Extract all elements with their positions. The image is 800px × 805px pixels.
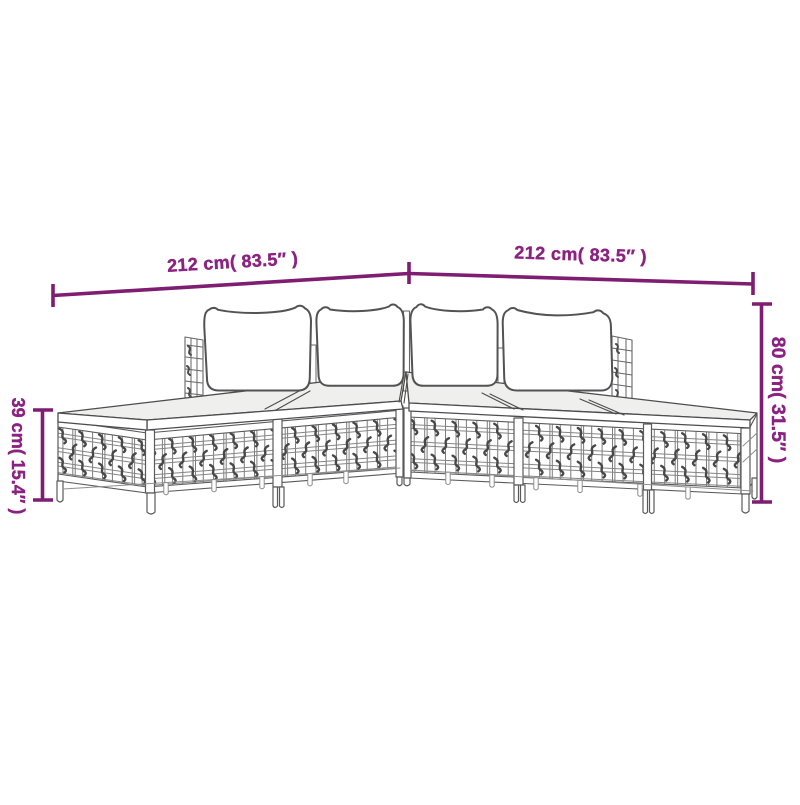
svg-text:212 cm( 83.5″ ): 212 cm( 83.5″ ) (514, 242, 647, 266)
svg-text:39 cm( 15.4″ ): 39 cm( 15.4″ ) (8, 398, 28, 515)
svg-text:80 cm( 31.5″ ): 80 cm( 31.5″ ) (767, 337, 789, 463)
